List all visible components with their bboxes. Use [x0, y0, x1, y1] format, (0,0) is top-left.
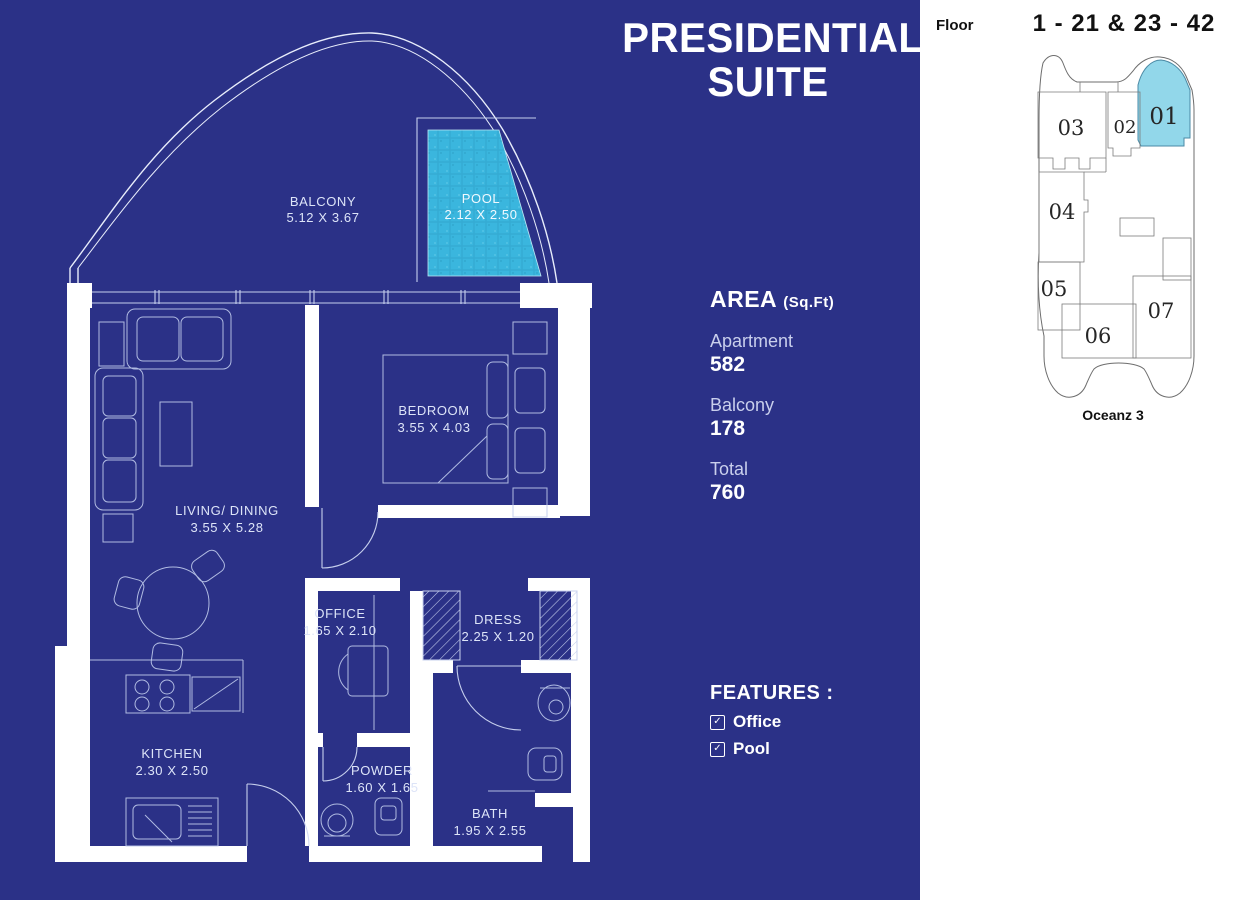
- unit-01-highlight: [1138, 60, 1190, 146]
- feature-office-label: Office: [733, 712, 781, 732]
- unit-label-07: 07: [1148, 299, 1175, 323]
- living-furniture: [95, 309, 231, 672]
- dress-label: DRESS: [474, 612, 522, 627]
- bath-fixtures: [488, 685, 570, 791]
- office-label: OFFICE: [314, 606, 365, 621]
- doors: [247, 508, 521, 846]
- living-dining-label: LIVING/ DINING: [175, 503, 279, 518]
- balcony-label: BALCONY: [290, 194, 356, 209]
- title-line-1: PRESIDENTIAL: [622, 16, 914, 60]
- floor-label: Floor: [936, 17, 974, 34]
- unit-label-02: 02: [1114, 117, 1137, 138]
- checkbox-checked-icon: [710, 715, 725, 730]
- unit-label-04: 04: [1049, 200, 1076, 224]
- unit-label-03: 03: [1058, 116, 1085, 140]
- checkbox-checked-icon: [710, 742, 725, 757]
- window-band: [92, 290, 520, 304]
- area-item-total: Total 760: [710, 458, 834, 505]
- page-title: PRESIDENTIAL SUITE: [622, 16, 914, 103]
- unit-label-06: 06: [1085, 324, 1112, 348]
- pool-dims: 2.12 X 2.50: [444, 207, 517, 222]
- kitchen-label: KITCHEN: [141, 746, 202, 761]
- page: POOL 2.12 X 2.50 BALCONY 5.12 X 3.67: [0, 0, 1240, 900]
- features-heading: FEATURES :: [710, 682, 834, 705]
- powder-fixtures: [321, 798, 402, 836]
- bedroom-dims: 3.55 X 4.03: [397, 420, 470, 435]
- kitchen-dims: 2.30 X 2.50: [135, 763, 208, 778]
- living-dining-dims: 3.55 X 5.28: [190, 520, 263, 535]
- bath-dims: 1.95 X 2.55: [453, 823, 526, 838]
- area-item-balcony: Balcony 178: [710, 394, 834, 441]
- apartment-label: Apartment: [710, 330, 834, 352]
- area-heading: AREA (Sq.Ft): [710, 286, 834, 313]
- unit-label-01: 01: [1149, 104, 1178, 130]
- floorplan-panel: POOL 2.12 X 2.50 BALCONY 5.12 X 3.67: [0, 0, 920, 900]
- balcony-dims: 5.12 X 3.67: [286, 210, 359, 225]
- powder-dims: 1.60 X 1.65: [345, 780, 418, 795]
- bath-label: BATH: [472, 806, 508, 821]
- feature-office: Office: [710, 712, 834, 732]
- dress-dims: 2.25 X 1.20: [461, 629, 534, 644]
- powder-label: POWDER: [351, 763, 413, 778]
- balcony-area-label: Balcony: [710, 394, 834, 416]
- feature-pool-label: Pool: [733, 739, 770, 759]
- office-dims: 1.65 X 2.10: [303, 623, 376, 638]
- floor-range: 1 - 21 & 23 - 42: [1016, 10, 1232, 38]
- building-key-plan: 01 02 03 04 05 06 07 Oceanz 3: [1000, 48, 1240, 428]
- bedroom-label: BEDROOM: [398, 403, 469, 418]
- title-line-2: SUITE: [622, 60, 914, 104]
- area-section: AREA (Sq.Ft) Apartment 582 Balcony 178 T…: [710, 286, 834, 505]
- pool-label: POOL: [462, 191, 501, 206]
- balcony-area-value: 178: [710, 416, 834, 441]
- key-plan-panel: Floor 1 - 21 & 23 - 42 01 02 03: [920, 0, 1240, 900]
- area-item-apartment: Apartment 582: [710, 330, 834, 377]
- area-heading-text: AREA: [710, 286, 776, 312]
- apartment-value: 582: [710, 352, 834, 377]
- total-area-label: Total: [710, 458, 834, 480]
- building-name: Oceanz 3: [1082, 407, 1144, 423]
- unit-label-05: 05: [1041, 277, 1068, 301]
- features-section: FEATURES : Office Pool: [710, 682, 834, 759]
- area-unit-text: (Sq.Ft): [783, 294, 834, 311]
- total-area-value: 760: [710, 480, 834, 505]
- feature-pool: Pool: [710, 739, 834, 759]
